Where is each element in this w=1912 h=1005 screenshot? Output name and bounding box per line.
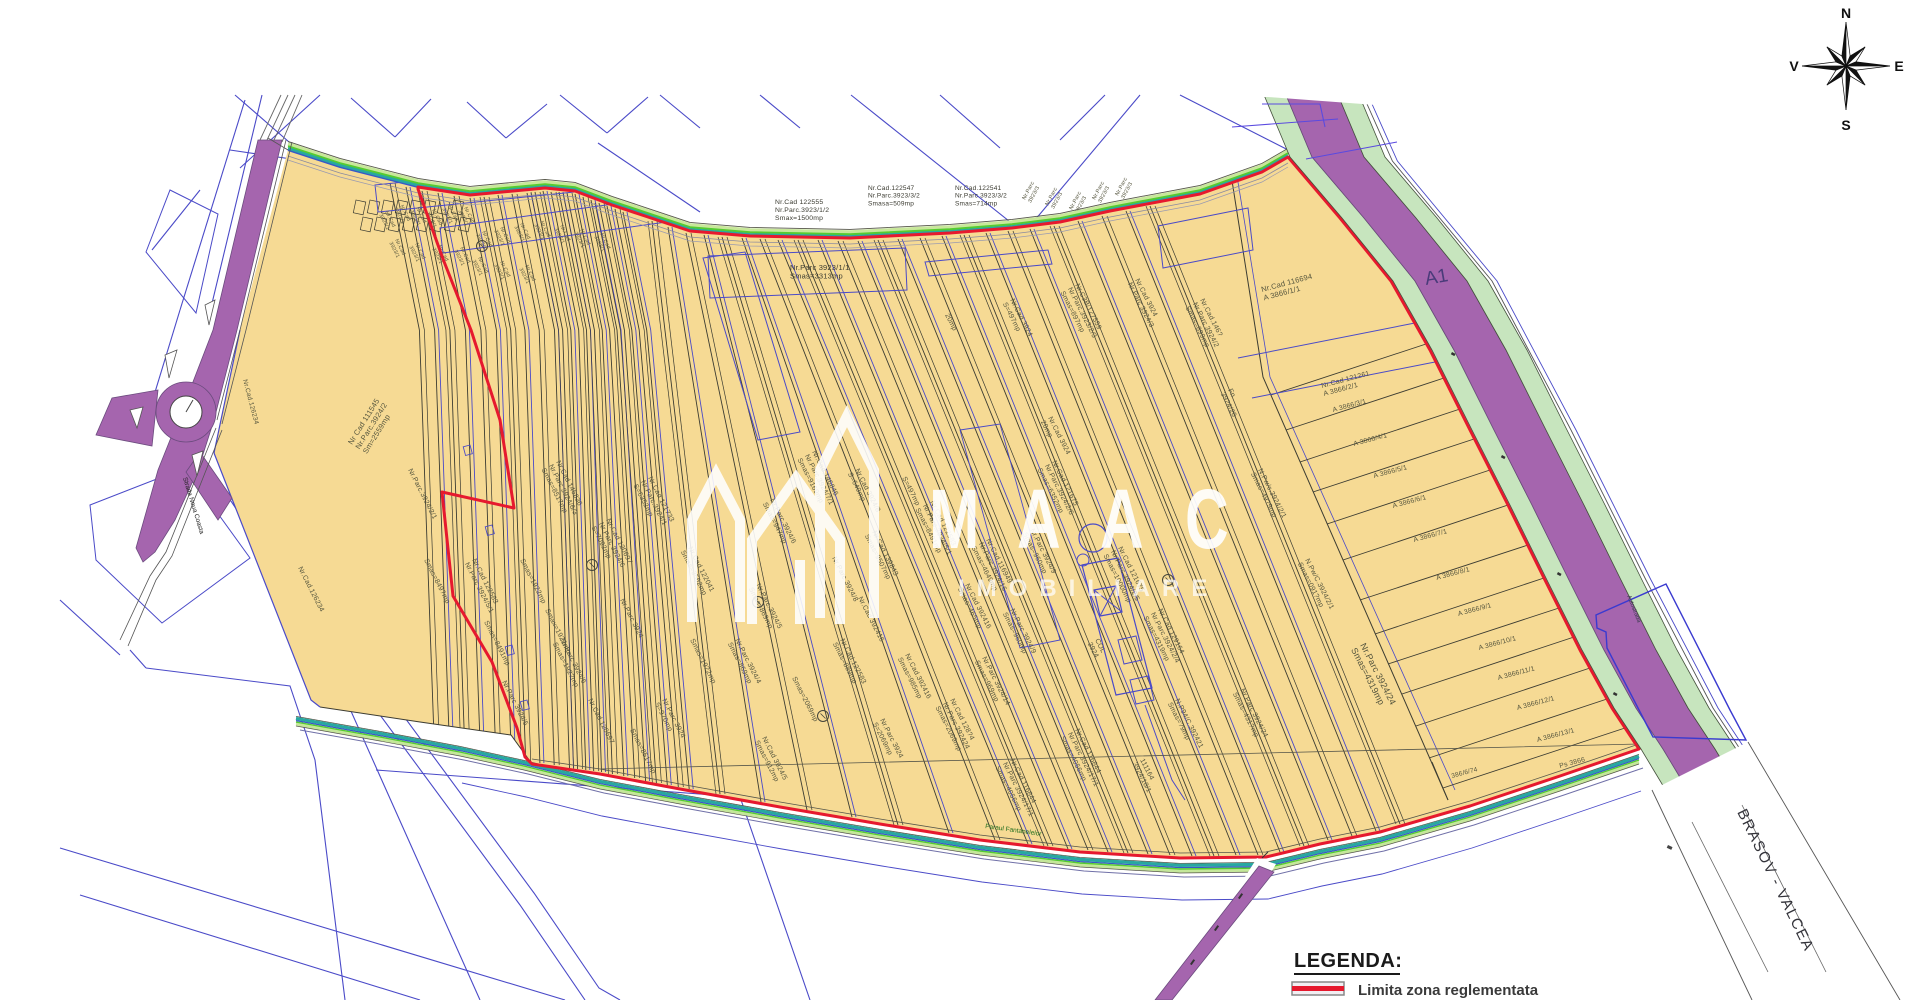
svg-text:LEGENDA:: LEGENDA:	[1294, 950, 1402, 972]
svg-text:E: E	[1894, 58, 1903, 74]
svg-text:Nr.Parc.3923/3/2: Nr.Parc.3923/3/2	[868, 193, 920, 200]
svg-text:N: N	[1841, 5, 1851, 21]
svg-text:Nr.Parc 3923/3/2: Nr.Parc 3923/3/2	[955, 193, 1007, 200]
svg-text:M: M	[929, 472, 979, 566]
svg-text:Smas=714mp: Smas=714mp	[955, 200, 997, 207]
svg-text:Smas=3313mp: Smas=3313mp	[790, 272, 843, 281]
svg-text:V: V	[1789, 58, 1799, 74]
svg-text:Nr.Cad 122555: Nr.Cad 122555	[775, 199, 823, 206]
svg-text:Nr.Cad.122541: Nr.Cad.122541	[955, 185, 1002, 192]
svg-text:Nr.Parc 3923/1/1: Nr.Parc 3923/1/1	[790, 263, 849, 272]
svg-text:Limita zona reglementata: Limita zona reglementata	[1358, 982, 1539, 999]
svg-text:S: S	[1841, 117, 1850, 133]
svg-text:A1: A1	[1423, 265, 1450, 290]
svg-text:Nr.Parc.3923/1/2: Nr.Parc.3923/1/2	[775, 207, 829, 214]
svg-text:Smasa=509mp: Smasa=509mp	[868, 200, 914, 207]
svg-text:Nr.Cad.122547: Nr.Cad.122547	[868, 185, 915, 192]
svg-text:A: A	[1017, 472, 1061, 566]
svg-text:C: C	[1185, 472, 1229, 566]
svg-text:A: A	[1100, 472, 1144, 566]
svg-text:Smax=1500mp: Smax=1500mp	[775, 215, 823, 222]
svg-text:IMOBILIARE: IMOBILIARE	[958, 575, 1219, 602]
